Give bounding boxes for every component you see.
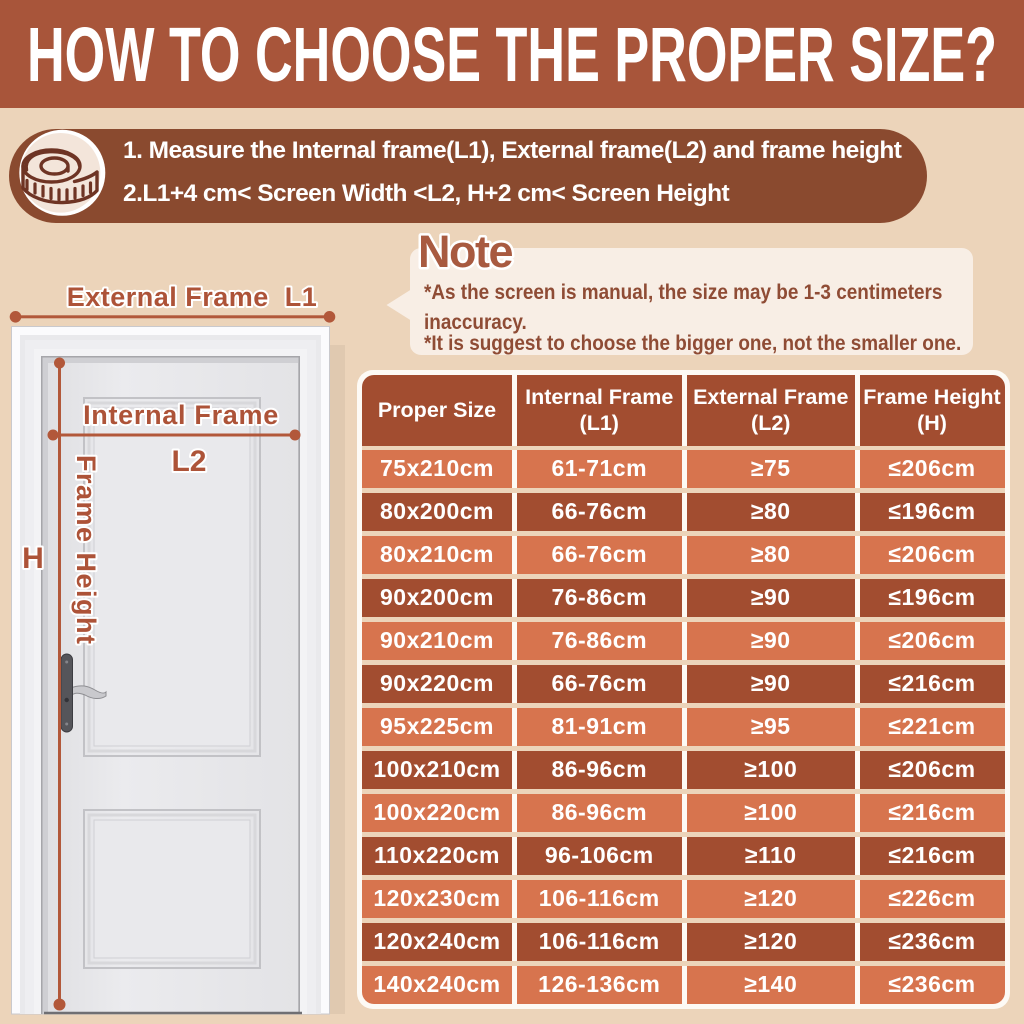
svg-text:Internal Frame: Internal Frame bbox=[83, 400, 279, 430]
svg-text:H: H bbox=[22, 542, 44, 575]
svg-text:L2: L2 bbox=[171, 445, 206, 478]
svg-text:Note: Note bbox=[418, 226, 512, 277]
svg-text:External Frame L1: External Frame L1 bbox=[67, 282, 318, 312]
svg-text:Frame Height: Frame Height bbox=[71, 455, 101, 646]
